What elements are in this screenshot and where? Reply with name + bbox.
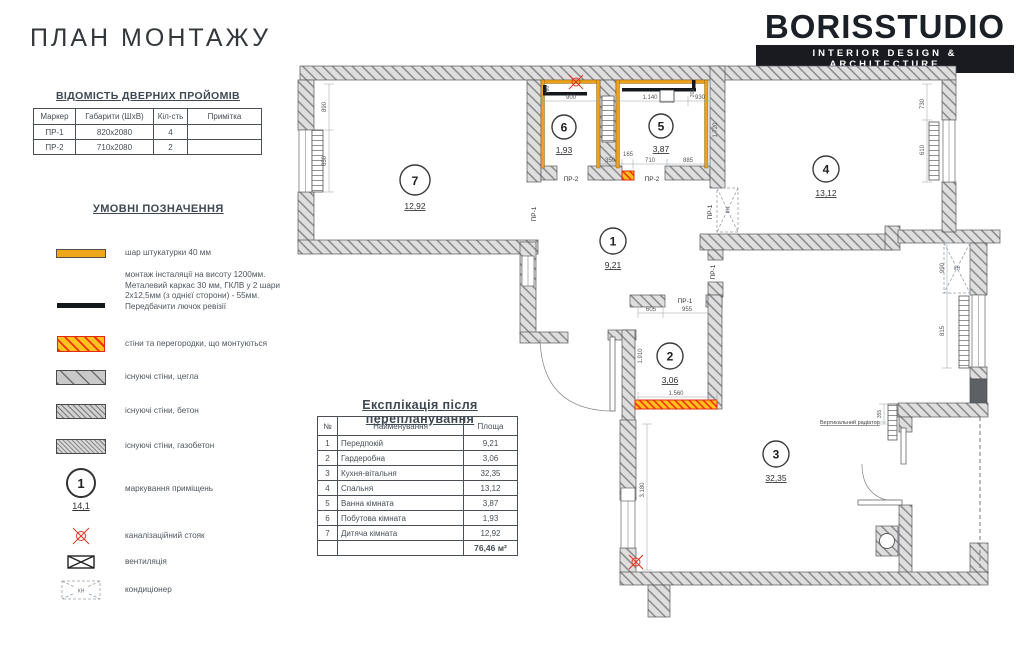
dim: 160 [545, 86, 551, 95]
vertical-radiator-icon [888, 404, 897, 440]
revision-hatch [660, 90, 674, 102]
room-marker-3: 3 32,35 [763, 441, 789, 483]
dim: 350 [605, 158, 616, 164]
dim: 650 [322, 155, 328, 166]
ac-label: КН [954, 266, 961, 272]
dim: 730 [920, 98, 926, 109]
vent-shaft-icon [602, 96, 614, 142]
radiator-icon [929, 122, 939, 180]
room-marker-2: 2 3,06 [657, 343, 683, 385]
dim: 605 [646, 307, 657, 313]
annotation-label: Вертикальний радіатор [820, 419, 880, 426]
air-conditioner-icon: КН [944, 243, 970, 293]
room-area: 9,21 [605, 260, 622, 270]
room-area: 1,93 [556, 145, 573, 155]
radiator-icon [959, 296, 969, 368]
dim: 200 [690, 89, 696, 98]
dim: 1.720 [713, 122, 719, 138]
room-number: 5 [658, 120, 665, 134]
room-number: 4 [823, 163, 830, 177]
column-icon [880, 534, 895, 549]
dim: 890 [322, 101, 328, 112]
dim: 1.910 [638, 348, 644, 364]
room-marker-1: 1 9,21 [600, 228, 626, 270]
dim: 710 [645, 158, 656, 164]
dim: 885 [683, 158, 694, 164]
room-number: 1 [610, 235, 617, 249]
room-area: 12,92 [404, 201, 426, 211]
dim: 955 [682, 307, 693, 313]
floor-plan: КН КН [0, 0, 1024, 657]
door-mark: ПР-1 [710, 264, 717, 279]
dim: 990 [940, 262, 946, 273]
room-area: 3,06 [662, 375, 679, 385]
door-mark: ПР-1 [678, 298, 693, 305]
door-mark: ПР-1 [531, 206, 538, 221]
dim: 355 [877, 410, 883, 419]
dim: 900 [566, 95, 577, 101]
ac-label: КН [726, 206, 732, 213]
room-marker-4: 4 13,12 [813, 156, 839, 198]
door-mark: ПР-2 [645, 176, 660, 183]
room-number: 7 [412, 174, 419, 188]
room-area: 13,12 [815, 188, 837, 198]
dim: 815 [940, 325, 946, 336]
air-conditioner-icon: КН [717, 188, 738, 232]
vertical-radiator-annotation: Вертикальний радіатор [820, 419, 886, 426]
room-number: 3 [773, 448, 780, 462]
dim: 3.180 [640, 482, 646, 498]
room-area: 3,87 [653, 144, 670, 154]
room-number: 2 [667, 350, 674, 364]
dim: 610 [920, 144, 926, 155]
existing-walls [298, 66, 1000, 617]
dim: 1.560 [668, 391, 684, 397]
room-marker-6: 6 1,93 [552, 115, 576, 155]
new-walls [622, 171, 717, 409]
door-mark: ПР-2 [564, 176, 579, 183]
dim: 165 [623, 152, 634, 158]
dim: 1.140 [642, 95, 658, 101]
dim: 930 [695, 95, 706, 101]
room-number: 6 [561, 121, 568, 135]
room-area: 32,35 [765, 473, 787, 483]
door-mark: ПР-1 [707, 204, 714, 219]
room-marker-7: 7 12,92 [400, 165, 430, 211]
dimension-lines [324, 84, 952, 570]
room-marker-5: 5 3,87 [649, 114, 673, 154]
